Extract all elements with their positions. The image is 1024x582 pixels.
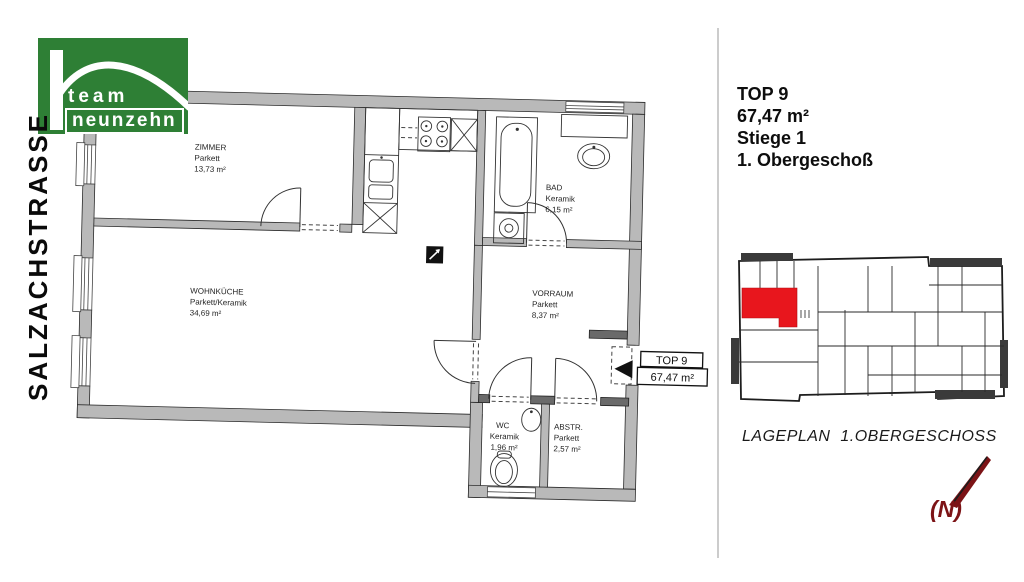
- room-area: 2,57 m²: [553, 444, 581, 454]
- room-material: Parkett: [194, 153, 220, 163]
- apartment-plan: ZIMMER Parkett 13,73 m² WOHNKÜCHE Parket…: [68, 89, 714, 503]
- site-plan: [731, 253, 1008, 401]
- washbasin-icon: [577, 143, 610, 169]
- bathtub-icon: [494, 117, 537, 213]
- north-arrow-icon: (N): [930, 456, 991, 522]
- fridge-icon: [451, 119, 478, 152]
- entry-tag: TOP 9 67,47 m²: [614, 351, 708, 386]
- room-material: Keramik: [545, 194, 576, 204]
- door-arc-abstr: [555, 358, 600, 404]
- room-name: BAD: [546, 183, 563, 192]
- room-label-bad: BAD Keramik 6,15 m²: [545, 183, 576, 215]
- company-logo: team neunzehn: [38, 38, 188, 134]
- room-label-vorraum: VORRAUM Parkett 8,37 m²: [532, 289, 574, 321]
- logo-word-neunzehn: neunzehn: [65, 108, 184, 134]
- north-label: (N): [930, 496, 962, 522]
- kitchen-fixtures: [362, 108, 478, 265]
- room-area: 1,96 m²: [490, 443, 518, 453]
- room-area: 6,15 m²: [545, 205, 573, 215]
- cabinet-icon: [363, 203, 398, 234]
- info-line-top: TOP 9: [737, 83, 873, 105]
- room-name: WOHNKÜCHE: [190, 286, 244, 296]
- toilet-icon: [490, 451, 518, 487]
- door-arc-vorraum: [433, 340, 479, 383]
- logo-word-team: team: [68, 86, 128, 108]
- room-area: 13,73 m²: [194, 164, 226, 174]
- street-label: SALZACHSTRASSE: [23, 121, 53, 401]
- room-area: 8,37 m²: [532, 311, 560, 321]
- boiler-icon: [426, 246, 443, 263]
- room-label-wc: WC Keramik 1,96 m²: [489, 421, 520, 453]
- small-basin-icon: [521, 408, 541, 431]
- room-label-wohnkueche: WOHNKÜCHE Parkett/Keramik 34,69 m²: [190, 286, 249, 318]
- bathroom-fixtures: [494, 113, 628, 246]
- room-area: 34,69 m²: [190, 308, 222, 318]
- room-name: ZIMMER: [195, 142, 227, 152]
- room-name: WC: [496, 421, 510, 430]
- info-line-floor: 1. Obergeschoß: [737, 149, 873, 171]
- doors: [257, 187, 636, 405]
- room-label-abstr: ABSTR. Parkett 2,57 m²: [553, 422, 583, 454]
- info-line-stiege: Stiege 1: [737, 127, 873, 149]
- stove-icon: [418, 117, 451, 152]
- entry-tag-top: TOP 9: [656, 355, 688, 368]
- siteplan-caption: LAGEPLAN 1.OBERGESCHOSS: [742, 428, 997, 446]
- room-material: Keramik: [490, 432, 521, 442]
- info-line-area: 67,47 m²: [737, 105, 873, 127]
- entry-arrow-icon: [614, 360, 632, 378]
- entry-tag-area: 67,47 m²: [650, 372, 694, 385]
- door-arc-wc: [489, 357, 532, 403]
- room-material: Parkett: [532, 300, 558, 310]
- floorplan-page: ZIMMER Parkett 13,73 m² WOHNKÜCHE Parket…: [0, 0, 1024, 582]
- room-label-zimmer: ZIMMER Parkett 13,73 m²: [194, 142, 227, 174]
- room-material: Parkett: [554, 433, 580, 443]
- room-name: ABSTR.: [554, 422, 583, 432]
- room-material: Parkett/Keramik: [190, 297, 248, 307]
- info-panel: TOP 9 67,47 m² Stiege 1 1. Obergeschoß: [737, 83, 873, 171]
- room-name: VORRAUM: [532, 289, 573, 299]
- sink-icon: [369, 156, 394, 199]
